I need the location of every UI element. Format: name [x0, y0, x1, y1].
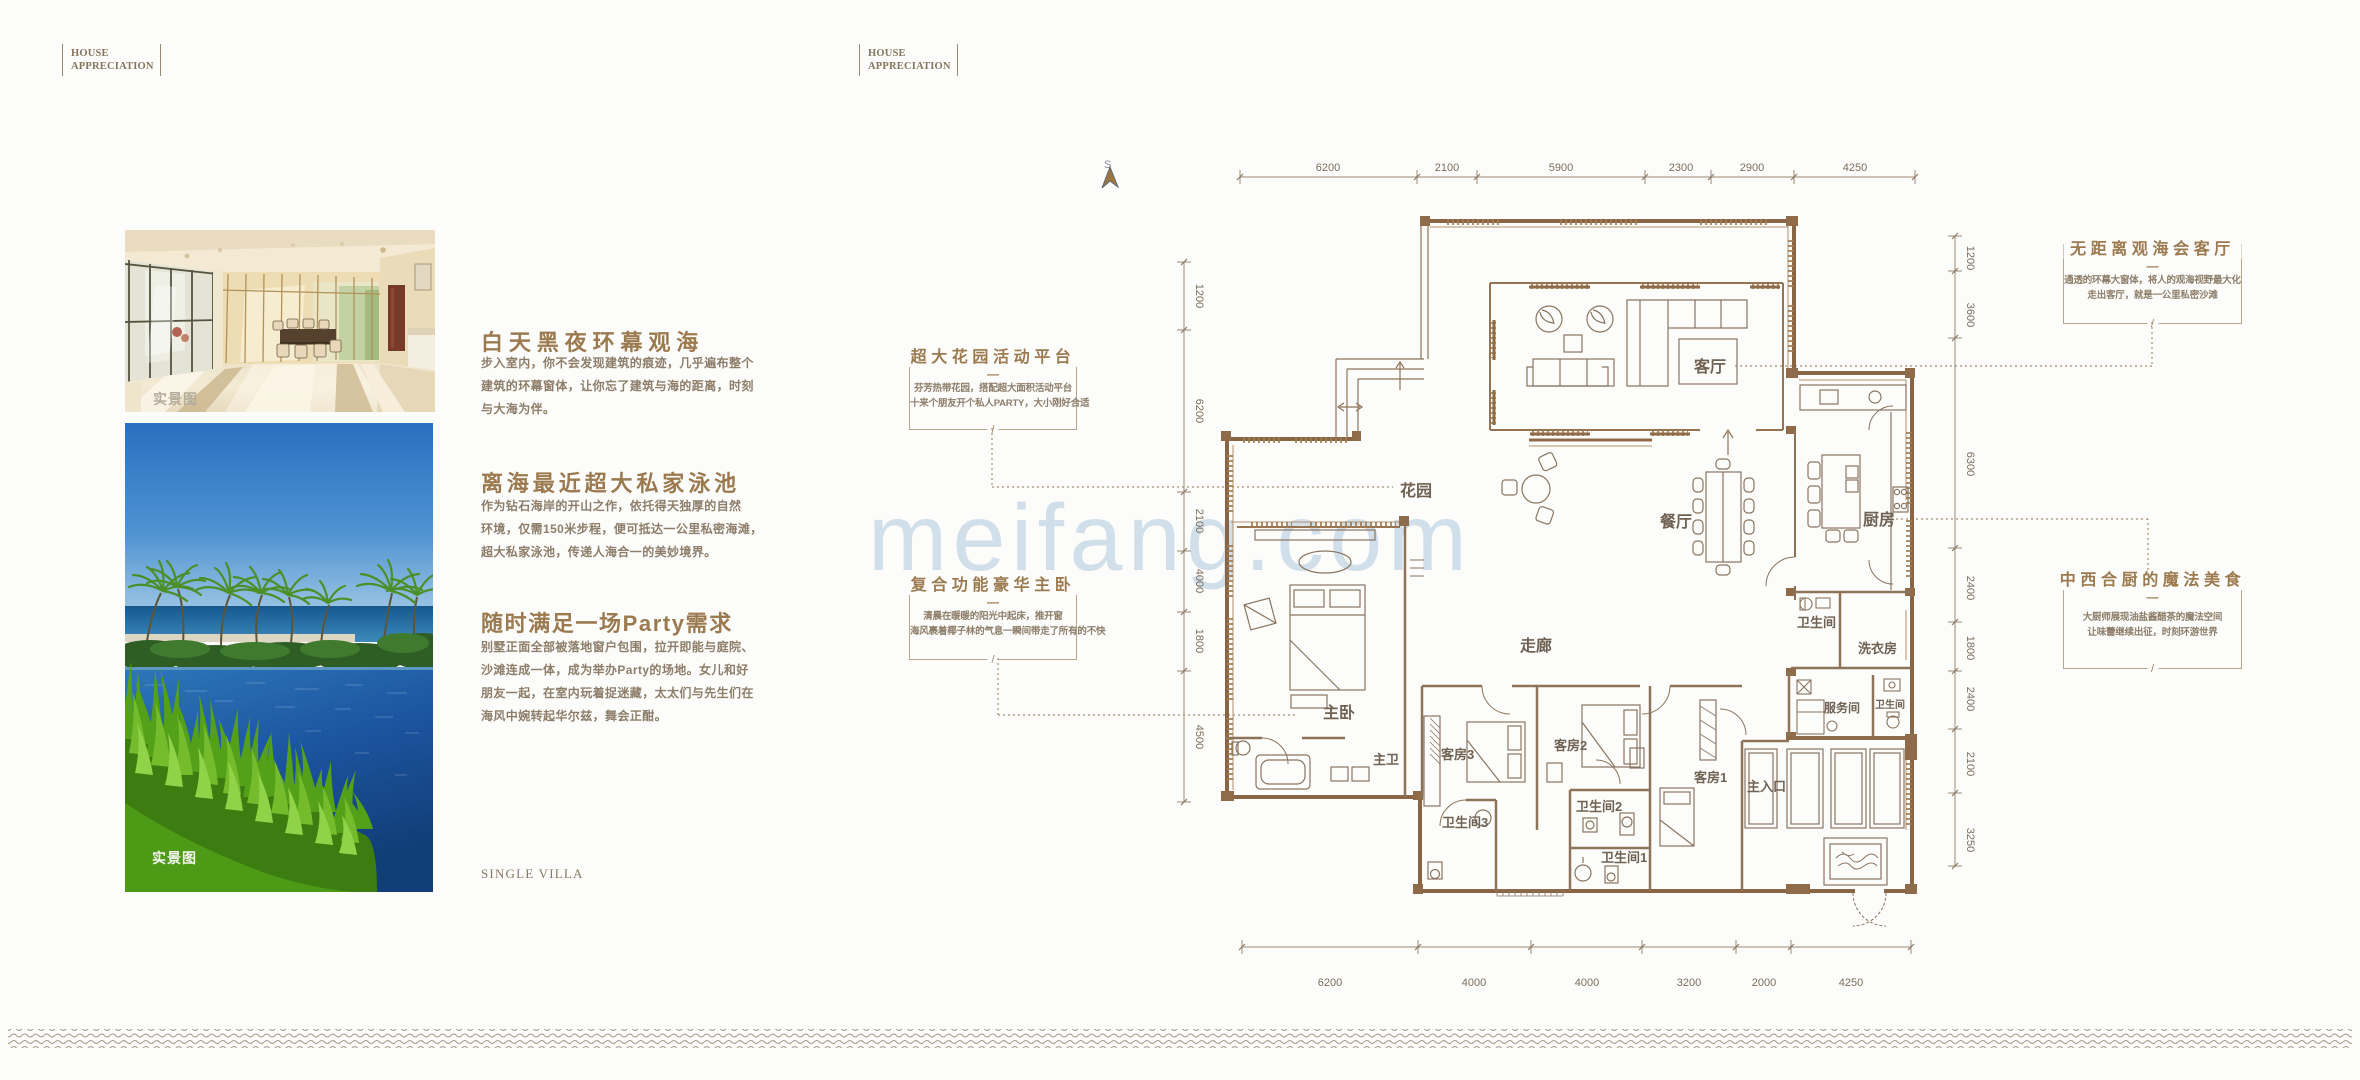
svg-text:4000: 4000 — [1575, 977, 1599, 989]
svg-text:6200: 6200 — [1316, 162, 1340, 174]
svg-text:客厅: 客厅 — [1694, 357, 1726, 376]
svg-text:主入口: 主入口 — [1747, 779, 1786, 794]
svg-text:卫生间1: 卫生间1 — [1601, 850, 1647, 865]
svg-text:6200: 6200 — [1318, 977, 1342, 989]
svg-text:洗衣房: 洗衣房 — [1858, 641, 1897, 656]
svg-text:1200: 1200 — [1193, 284, 1205, 308]
svg-text:餐厅: 餐厅 — [1659, 512, 1692, 531]
svg-text:2300: 2300 — [1669, 162, 1693, 174]
svg-text:厨房: 厨房 — [1863, 510, 1895, 529]
svg-text:4250: 4250 — [1843, 162, 1867, 174]
svg-text:4500: 4500 — [1193, 725, 1205, 749]
svg-text:走廊: 走廊 — [1519, 636, 1552, 655]
svg-text:2400: 2400 — [1964, 687, 1976, 711]
svg-text:花园: 花园 — [1400, 481, 1432, 500]
svg-text:卫生间2: 卫生间2 — [1576, 799, 1622, 814]
svg-text:客房1: 客房1 — [1694, 770, 1727, 785]
svg-text:主卧: 主卧 — [1323, 703, 1355, 722]
svg-text:2000: 2000 — [1752, 977, 1776, 989]
svg-text:卫生间: 卫生间 — [1875, 698, 1905, 711]
svg-text:5900: 5900 — [1549, 162, 1573, 174]
svg-text:2400: 2400 — [1964, 576, 1976, 600]
svg-text:2100: 2100 — [1964, 752, 1976, 776]
svg-text:4000: 4000 — [1462, 977, 1486, 989]
svg-text:6200: 6200 — [1193, 399, 1205, 423]
svg-text:3250: 3250 — [1964, 828, 1976, 852]
svg-text:卫生间: 卫生间 — [1797, 615, 1836, 630]
svg-text:主卫: 主卫 — [1373, 752, 1399, 767]
svg-text:2900: 2900 — [1740, 162, 1764, 174]
svg-text:客房2: 客房2 — [1554, 738, 1587, 753]
svg-text:4000: 4000 — [1193, 569, 1205, 593]
svg-text:1800: 1800 — [1964, 636, 1976, 660]
svg-text:4250: 4250 — [1839, 977, 1863, 989]
svg-text:3600: 3600 — [1964, 303, 1976, 327]
svg-text:2100: 2100 — [1193, 509, 1205, 533]
svg-text:卫生间3: 卫生间3 — [1442, 815, 1488, 830]
svg-text:6300: 6300 — [1964, 452, 1976, 476]
svg-text:客房3: 客房3 — [1441, 747, 1474, 762]
svg-text:1200: 1200 — [1964, 246, 1976, 270]
svg-text:3200: 3200 — [1677, 977, 1701, 989]
svg-text:服务间: 服务间 — [1824, 700, 1860, 715]
svg-text:2100: 2100 — [1435, 162, 1459, 174]
svg-text:1800: 1800 — [1193, 629, 1205, 653]
